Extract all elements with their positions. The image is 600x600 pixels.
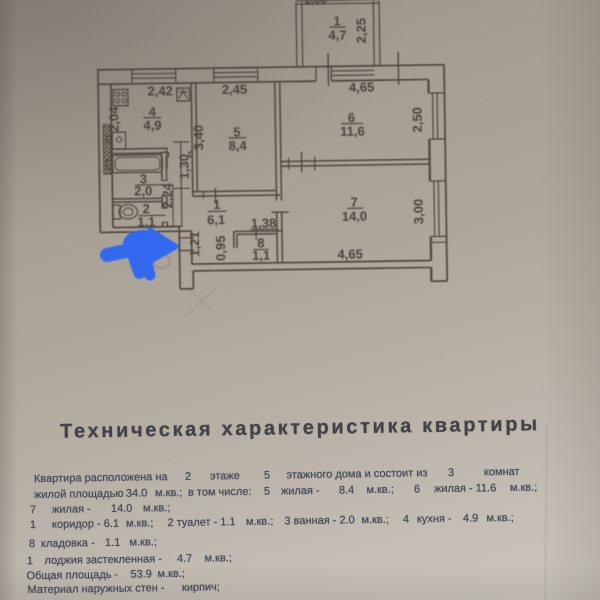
svg-text:2,0: 2,0 (134, 183, 152, 198)
svg-text:6,1: 6,1 (207, 212, 225, 227)
svg-text:1,1: 1,1 (252, 248, 270, 263)
svg-text:1,21: 1,21 (187, 231, 202, 257)
svg-text:1,38: 1,38 (251, 215, 277, 230)
svg-text:7: 7 (350, 195, 357, 210)
svg-text:8,4: 8,4 (228, 138, 247, 153)
svg-text:2,50: 2,50 (410, 107, 425, 133)
svg-text:14,0: 14,0 (342, 208, 368, 223)
svg-text:4,9: 4,9 (143, 118, 161, 133)
svg-text:3,40: 3,40 (191, 125, 206, 151)
svg-text:2,45: 2,45 (222, 82, 248, 97)
svg-text:0,95: 0,95 (213, 235, 228, 261)
svg-text:11,6: 11,6 (340, 123, 365, 138)
svg-text:1: 1 (333, 13, 340, 28)
svg-text:1: 1 (213, 197, 220, 212)
svg-text:2,08: 2,08 (305, 0, 327, 6)
svg-text:1,1: 1,1 (137, 214, 155, 229)
svg-text:2,24: 2,24 (160, 182, 175, 208)
svg-text:4,7: 4,7 (328, 27, 346, 42)
svg-text:3,00: 3,00 (411, 199, 426, 225)
svg-text:2,42: 2,42 (147, 83, 173, 98)
svg-text:2,25: 2,25 (353, 18, 368, 44)
svg-text:4,65: 4,65 (337, 246, 363, 261)
svg-text:4,65: 4,65 (349, 79, 375, 94)
svg-text:2,04: 2,04 (106, 106, 121, 132)
svg-text:1,30: 1,30 (176, 154, 191, 180)
